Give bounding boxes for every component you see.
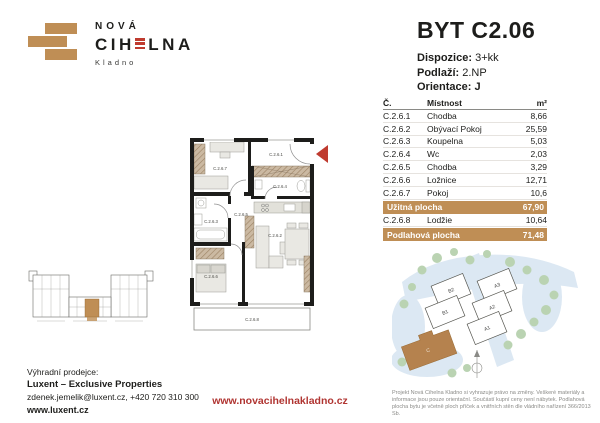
brand-logo-text: NOVÁ CIHLNA Kladno: [95, 21, 194, 67]
cell-number: C.2.6.2: [383, 124, 427, 134]
table-row: C.2.6.6 Ložnice 12,71: [383, 174, 547, 187]
table-row: C.2.6.1 Chodba 8,66: [383, 110, 547, 123]
spec-dispozice-label: Dispozice:: [417, 52, 472, 64]
brand-logo: NOVÁ CIHLNA Kladno: [28, 16, 218, 68]
entrance-arrow-icon: [316, 145, 328, 163]
flyer-page: NOVÁ CIHLNA Kladno BYT C2.06 Dispozice: …: [0, 0, 600, 423]
room-label-wc: C.2.6.4: [273, 184, 287, 189]
usable-area-label: Užitná plocha: [383, 202, 506, 212]
project-website-link[interactable]: www.novacihelnakladno.cz: [205, 395, 355, 407]
cell-room: Wc: [427, 149, 509, 159]
apartment-id-title: BYT C2.06: [417, 17, 535, 44]
cell-area: 5,03: [509, 136, 547, 146]
cell-number: C.2.6.4: [383, 149, 427, 159]
floor-overview-plan: [15, 255, 160, 343]
spec-podlazi-label: Podlaží:: [417, 67, 459, 79]
brand-name-top: NOVÁ: [95, 21, 194, 32]
brand-name-main: CIHLNA: [95, 35, 194, 55]
spec-podlazi: Podlaží: 2.NP: [417, 66, 535, 81]
seller-contact-block: Výhradní prodejce: Luxent – Exclusive Pr…: [27, 366, 199, 416]
legal-disclaimer: Projekt Nová Cihelna Kladno si vyhrazuje…: [392, 390, 593, 418]
cell-room: Pokoj: [427, 188, 509, 198]
brand-brick-icon: [28, 16, 86, 64]
brand-name-main-left: CIH: [95, 35, 135, 54]
cell-number: C.2.6.7: [383, 188, 427, 198]
brand-letter-e-icon: [135, 38, 145, 50]
table-row: C.2.6.3 Koupelna 5,03: [383, 136, 547, 149]
cell-area: 2,03: [509, 149, 547, 159]
cell-room: Lodžie: [427, 215, 509, 225]
cell-room: Chodba: [427, 111, 509, 121]
table-row: C.2.6.4 Wc 2,03: [383, 148, 547, 161]
spec-dispozice: Dispozice: 3+kk: [417, 51, 535, 66]
spec-orientace-value: J: [474, 81, 480, 93]
spec-podlazi-value: 2.NP: [462, 67, 486, 79]
seller-name: Luxent – Exclusive Properties: [27, 379, 199, 392]
cell-room: Obývací Pokoj: [427, 124, 509, 134]
table-row: C.2.6.7 Pokoj 10,6: [383, 187, 547, 200]
room-area-table: Č. Místnost m² C.2.6.1 Chodba 8,66 C.2.6…: [383, 96, 547, 242]
cell-number: C.2.6.5: [383, 162, 427, 172]
col-header-room: Místnost: [427, 98, 509, 108]
usable-area-value: 67,90: [506, 202, 547, 212]
cell-room: Ložnice: [427, 175, 509, 185]
table-row-lodzie: C.2.6.8 Lodžie 10,64: [383, 215, 547, 228]
floor-area-label: Podlahová plocha: [383, 230, 506, 240]
cell-area: 25,59: [509, 124, 547, 134]
seller-label: Výhradní prodejce:: [27, 366, 199, 379]
cell-number: C.2.6.3: [383, 136, 427, 146]
cell-area: 10,6: [509, 188, 547, 198]
room-label-obyvaci-pokoj: C.2.6.2: [268, 233, 282, 238]
brand-name-sub: Kladno: [95, 58, 194, 67]
table-header-row: Č. Místnost m²: [383, 96, 547, 110]
floor-area-value: 71,48: [506, 230, 547, 240]
table-row: C.2.6.5 Chodba 3,29: [383, 161, 547, 174]
room-label-chodba-2: C.2.6.5: [234, 212, 248, 217]
cell-number: C.2.6.6: [383, 175, 427, 185]
col-header-number: Č.: [383, 98, 427, 108]
seller-website-link[interactable]: www.luxent.cz: [27, 404, 199, 417]
room-label-koupelna: C.2.6.3: [204, 219, 218, 224]
site-plan: B2 B1 A3 A2 A1 C: [392, 242, 597, 384]
cell-area: 3,29: [509, 162, 547, 172]
apartment-title-block: BYT C2.06 Dispozice: 3+kk Podlaží: 2.NP …: [417, 17, 535, 95]
room-label-pokoj: C.2.6.7: [213, 166, 227, 171]
cell-area: 12,71: [509, 175, 547, 185]
usable-area-row: Užitná plocha 67,90: [383, 201, 547, 214]
room-label-lodzie: C.2.6.8: [245, 317, 259, 322]
floor-area-row: Podlahová plocha 71,48: [383, 228, 547, 241]
spec-orientace: Orientace: J: [417, 80, 535, 95]
cell-room: Koupelna: [427, 136, 509, 146]
brand-name-main-right: LNA: [148, 35, 193, 54]
room-label-loznice: C.2.6.6: [204, 274, 218, 279]
cell-room: Chodba: [427, 162, 509, 172]
col-header-area: m²: [509, 98, 547, 108]
spec-dispozice-value: 3+kk: [475, 52, 499, 64]
seller-contact[interactable]: zdenek.jemelik@luxent.cz, +420 720 310 3…: [27, 391, 199, 404]
highlighted-unit: [85, 299, 99, 321]
spec-orientace-label: Orientace:: [417, 81, 471, 93]
cell-number: C.2.6.1: [383, 111, 427, 121]
cell-number: C.2.6.8: [383, 215, 427, 225]
cell-area: 8,66: [509, 111, 547, 121]
compass-icon: [472, 350, 482, 378]
room-label-chodba-1: C.2.6.1: [269, 152, 283, 157]
apartment-floorplan: C.2.6.7 C.2.6.1 C.2.6.4 C.2.6.5 C.2.6.3 …: [180, 126, 340, 341]
cell-area: 10,64: [509, 215, 547, 225]
table-row: C.2.6.2 Obývací Pokoj 25,59: [383, 123, 547, 136]
